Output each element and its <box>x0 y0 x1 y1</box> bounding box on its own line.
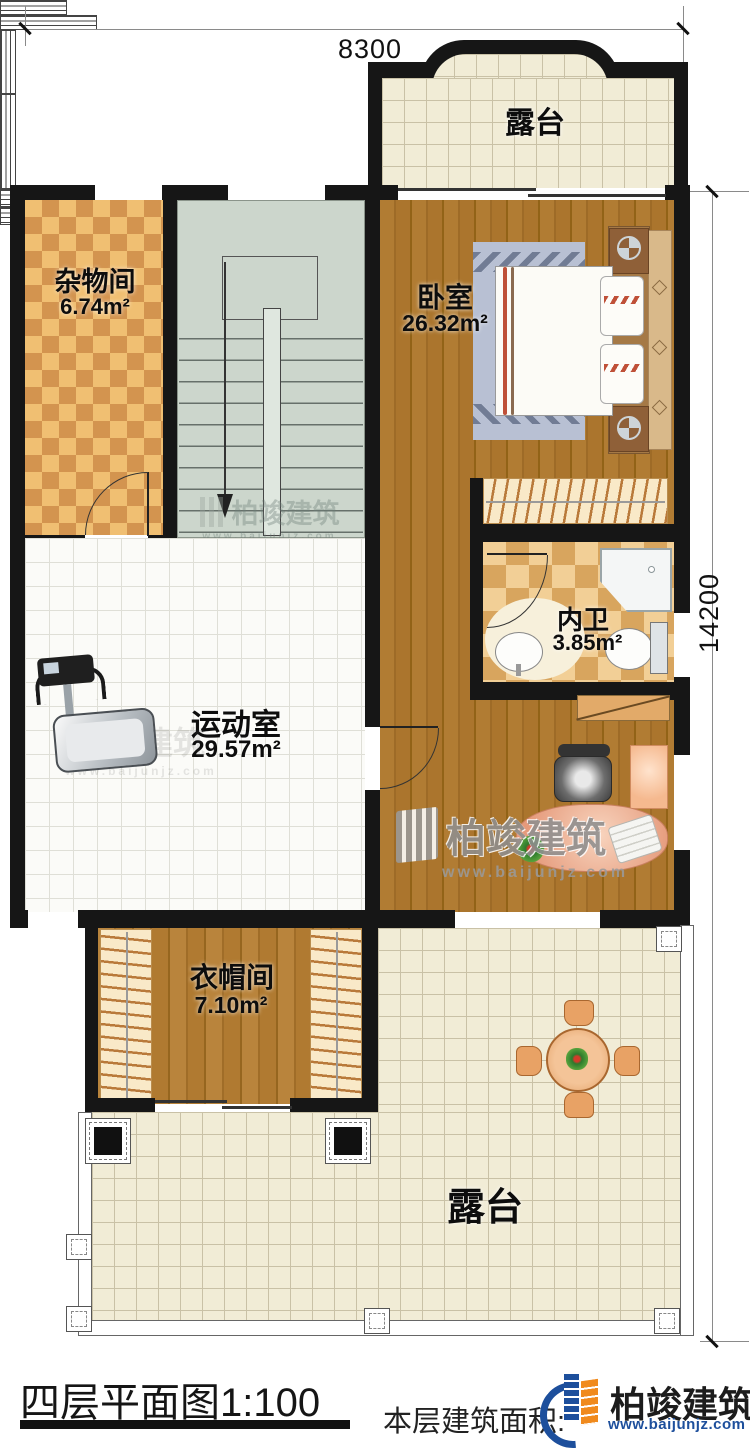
treadmill <box>24 644 167 787</box>
railing-post <box>656 926 682 952</box>
railing <box>680 925 694 1336</box>
bed-stripe <box>503 267 507 415</box>
sink-tap-icon <box>516 664 521 676</box>
dim-right-label: 14200 <box>694 568 724 658</box>
chair <box>564 1000 594 1026</box>
cloakroom-area: 7.10m² <box>175 992 287 1019</box>
nightstand-ornament-icon <box>617 416 641 440</box>
bedroom-area: 26.32m² <box>390 310 500 337</box>
railing-post <box>654 1308 680 1334</box>
chair <box>516 1046 542 1076</box>
chair <box>564 1092 594 1118</box>
floor-plan: 8300 14200 露台 杂物间 6.74m² 柏竣建筑 www.baijun… <box>0 0 750 1455</box>
window <box>0 0 67 15</box>
toilet-tank <box>650 622 668 674</box>
sliding-door <box>222 1106 292 1109</box>
stair-rail <box>263 308 281 536</box>
dim-ext <box>683 6 684 62</box>
terrace-bottom-floor <box>92 1112 680 1320</box>
wardrobe <box>100 929 152 1101</box>
bathroom-area: 3.85m² <box>540 630 635 656</box>
window <box>0 30 16 94</box>
dim-ext <box>700 1341 749 1342</box>
office-chair <box>554 756 612 802</box>
treadmill-screen <box>43 662 59 674</box>
railing-post <box>364 1308 390 1334</box>
column <box>325 1118 371 1164</box>
dim-top-label: 8300 <box>325 34 415 65</box>
pillow-zigzag <box>604 364 640 372</box>
wardrobe <box>310 929 362 1101</box>
storage-area: 6.74m² <box>30 294 160 320</box>
wardrobe <box>483 478 668 524</box>
brand-site: www.baijunjz.com <box>608 1416 745 1433</box>
column <box>85 1118 131 1164</box>
sliding-door <box>155 1100 227 1103</box>
chair <box>614 1046 640 1076</box>
railing-post <box>66 1306 92 1332</box>
window <box>0 94 16 189</box>
brand-logo-icon <box>540 1372 604 1440</box>
railing-post <box>66 1234 92 1260</box>
cloakroom-label: 衣帽间 <box>162 956 302 996</box>
gym-area: 29.57m² <box>168 736 304 764</box>
down-arrow-icon <box>217 494 233 518</box>
title-underline <box>20 1420 350 1429</box>
logo-building-blue <box>564 1374 579 1422</box>
treadmill-deck <box>65 718 146 763</box>
window <box>0 15 97 30</box>
sliding-door <box>398 188 536 191</box>
pillow <box>600 344 644 404</box>
pillow-zigzag <box>604 296 640 304</box>
nightstand-ornament-icon <box>617 236 641 260</box>
pillow <box>600 276 644 336</box>
table-plant-icon <box>566 1048 588 1070</box>
stair-guide-line <box>224 262 226 496</box>
sliding-door <box>528 194 666 197</box>
logo-building-orange <box>581 1379 598 1425</box>
terrace-top-label: 露台 <box>492 98 578 142</box>
dim-line-right <box>712 192 713 1342</box>
dim-line-top <box>25 29 683 30</box>
bed-stripe <box>511 267 514 415</box>
desk-side <box>630 745 668 809</box>
terrace-bottom-label: 露台 <box>420 1176 550 1231</box>
dim-ext <box>688 191 749 192</box>
shower-drain-icon <box>648 566 655 573</box>
